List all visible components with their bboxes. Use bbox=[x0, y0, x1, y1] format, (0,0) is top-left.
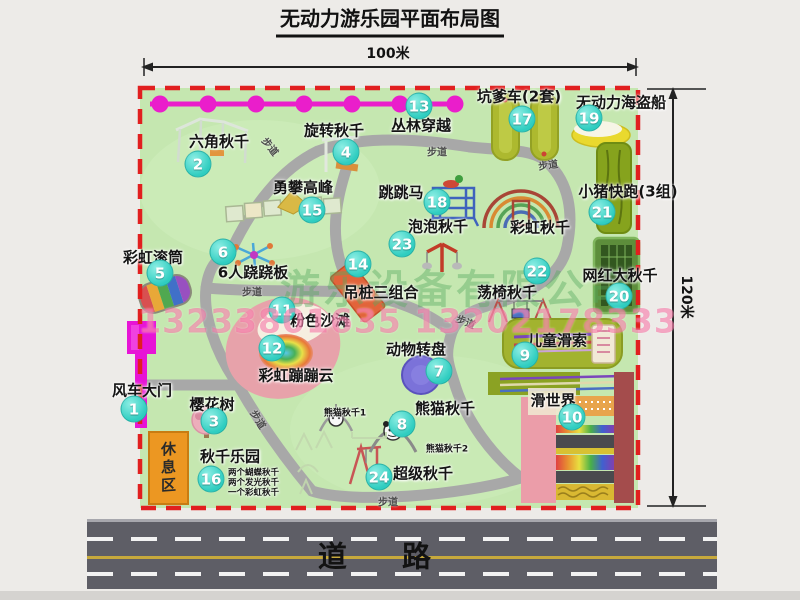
path-label: 步道 bbox=[378, 494, 398, 509]
label-panda-swing-2: 熊猫秋千2 bbox=[426, 442, 468, 455]
label-animal-carousel: 动物转盘 bbox=[386, 339, 446, 360]
badge-4: 4 bbox=[333, 139, 360, 166]
label-jumping-horse: 跳跳马 bbox=[378, 182, 423, 203]
label-chair-swing: 荡椅秋千 bbox=[477, 282, 537, 303]
width-dimension-label: 100米 bbox=[366, 43, 409, 63]
park-layout-map: 无动力游乐园平面布局图 100米 120米 游乐设备有限公司 休息区 步道 步道… bbox=[0, 0, 800, 600]
badge-8: 8 bbox=[389, 411, 416, 438]
label-rainbow-swing: 彩虹秋千 bbox=[510, 217, 570, 238]
road-shoulder bbox=[0, 591, 800, 600]
badge-24: 24 bbox=[366, 464, 393, 491]
watermark-phone: 13233801635 13202178333 bbox=[138, 302, 678, 341]
label-seesaw: 6人跷跷板 bbox=[218, 262, 288, 283]
road-label: 道路 bbox=[318, 533, 486, 575]
label-swing-park: 秋千乐园 bbox=[200, 446, 260, 467]
swing-park-note-3: 一个彩虹秋千 bbox=[228, 486, 279, 498]
label-bubble-swing: 泡泡秋千 bbox=[408, 216, 468, 237]
label-climbing-peak: 勇攀高峰 bbox=[273, 177, 333, 198]
path-label: 步道 bbox=[427, 144, 447, 159]
badge-10: 10 bbox=[559, 404, 586, 431]
badge-1: 1 bbox=[121, 396, 148, 423]
label-pit-car: 坑爹车(2套) bbox=[477, 86, 561, 107]
path-label: 步道 bbox=[537, 155, 559, 173]
badge-9: 9 bbox=[512, 342, 539, 369]
badge-23: 23 bbox=[389, 231, 416, 258]
badge-5: 5 bbox=[147, 260, 174, 287]
label-hanging-pile: 吊桩三组合 bbox=[343, 282, 418, 303]
height-dimension-label: 120米 bbox=[677, 275, 697, 318]
label-rotating-swing: 旋转秋千 bbox=[304, 120, 364, 141]
badge-2: 2 bbox=[185, 151, 212, 178]
badge-22: 22 bbox=[524, 258, 551, 285]
label-panda-swing-1: 熊猫秋千1 bbox=[324, 406, 366, 419]
badge-18: 18 bbox=[424, 189, 451, 216]
rest-area-label: 休息区 bbox=[158, 440, 179, 495]
badge-16: 16 bbox=[198, 466, 225, 493]
badge-14: 14 bbox=[345, 251, 372, 278]
label-super-swing: 超级秋千 bbox=[393, 463, 453, 484]
badge-7: 7 bbox=[426, 358, 453, 385]
rest-area: 休息区 bbox=[148, 431, 189, 505]
badge-3: 3 bbox=[201, 408, 228, 435]
badge-13: 13 bbox=[406, 93, 433, 120]
badge-19: 19 bbox=[576, 105, 603, 132]
badge-15: 15 bbox=[299, 197, 326, 224]
road: 道路 bbox=[87, 519, 717, 589]
label-panda-swing: 熊猫秋千 bbox=[415, 398, 475, 419]
path-label: 步道 bbox=[242, 284, 262, 299]
label-piggy-run: 小猪快跑(3组) bbox=[578, 181, 677, 202]
badge-17: 17 bbox=[509, 106, 536, 133]
label-rainbow-cloud: 彩虹蹦蹦云 bbox=[258, 365, 333, 386]
label-hexagon-swing: 六角秋千 bbox=[189, 131, 249, 152]
page-title: 无动力游乐园平面布局图 bbox=[276, 3, 504, 38]
badge-6: 6 bbox=[210, 239, 237, 266]
badge-21: 21 bbox=[589, 199, 616, 226]
